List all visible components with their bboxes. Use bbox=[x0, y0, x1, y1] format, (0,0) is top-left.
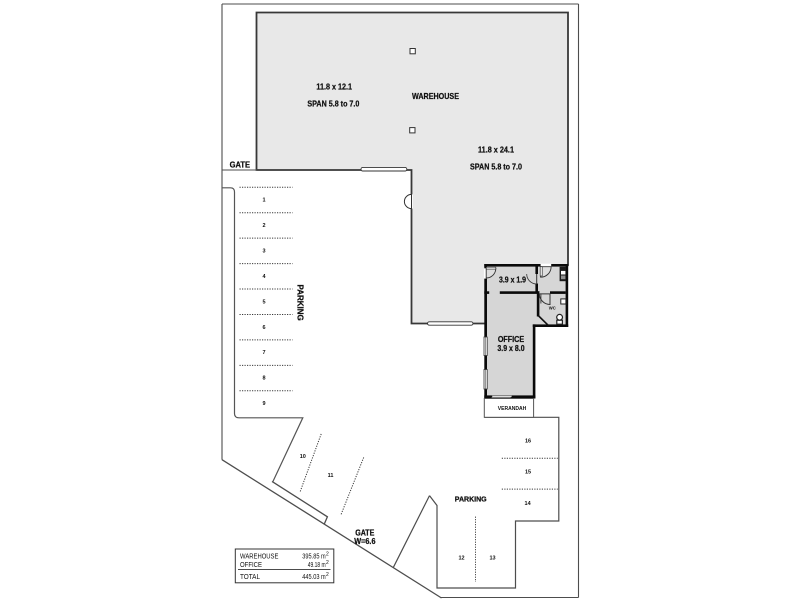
svg-text:49.18 m: 49.18 m bbox=[308, 562, 326, 569]
svg-text:WC: WC bbox=[549, 306, 556, 311]
svg-text:VERANDAH: VERANDAH bbox=[498, 406, 527, 412]
svg-text:2: 2 bbox=[326, 572, 329, 578]
svg-text:W=6.6: W=6.6 bbox=[354, 537, 376, 546]
svg-text:SPAN 5.8 to 7.0: SPAN 5.8 to 7.0 bbox=[470, 161, 522, 171]
svg-text:OFFICE: OFFICE bbox=[498, 335, 524, 344]
svg-text:14: 14 bbox=[525, 501, 532, 507]
svg-text:PARKING: PARKING bbox=[455, 497, 487, 504]
svg-text:GATE: GATE bbox=[230, 161, 250, 170]
svg-text:3.9 x 8.0: 3.9 x 8.0 bbox=[497, 344, 525, 353]
svg-text:2: 2 bbox=[326, 560, 329, 566]
svg-text:SPAN 5.8 to 7.0: SPAN 5.8 to 7.0 bbox=[307, 98, 359, 108]
svg-text:PARKING: PARKING bbox=[296, 285, 305, 321]
svg-text:12: 12 bbox=[458, 556, 464, 562]
svg-text:OFFICE: OFFICE bbox=[240, 562, 262, 569]
svg-text:TOTAL: TOTAL bbox=[240, 574, 260, 581]
svg-text:11: 11 bbox=[328, 473, 334, 479]
svg-text:6: 6 bbox=[262, 325, 265, 331]
svg-text:2: 2 bbox=[262, 223, 265, 229]
svg-text:WAREHOUSE: WAREHOUSE bbox=[412, 91, 459, 101]
svg-text:13: 13 bbox=[489, 556, 495, 562]
svg-text:8: 8 bbox=[262, 376, 265, 382]
svg-text:3: 3 bbox=[262, 248, 265, 254]
svg-text:15: 15 bbox=[525, 470, 531, 476]
svg-text:1: 1 bbox=[262, 198, 265, 204]
svg-text:3.9 x 1.9: 3.9 x 1.9 bbox=[499, 276, 527, 285]
svg-text:16: 16 bbox=[525, 439, 531, 445]
svg-text:2: 2 bbox=[326, 552, 329, 558]
svg-text:11.8 x 24.1: 11.8 x 24.1 bbox=[478, 144, 514, 154]
svg-text:10: 10 bbox=[300, 454, 306, 460]
svg-text:445.03 m: 445.03 m bbox=[302, 574, 326, 581]
svg-text:395.85 m: 395.85 m bbox=[302, 554, 326, 561]
svg-text:5: 5 bbox=[262, 299, 265, 305]
svg-text:7: 7 bbox=[262, 350, 265, 356]
svg-text:11.8 x 12.1: 11.8 x 12.1 bbox=[316, 81, 352, 91]
svg-text:9: 9 bbox=[262, 401, 265, 407]
svg-text:WAREHOUSE: WAREHOUSE bbox=[240, 554, 279, 561]
